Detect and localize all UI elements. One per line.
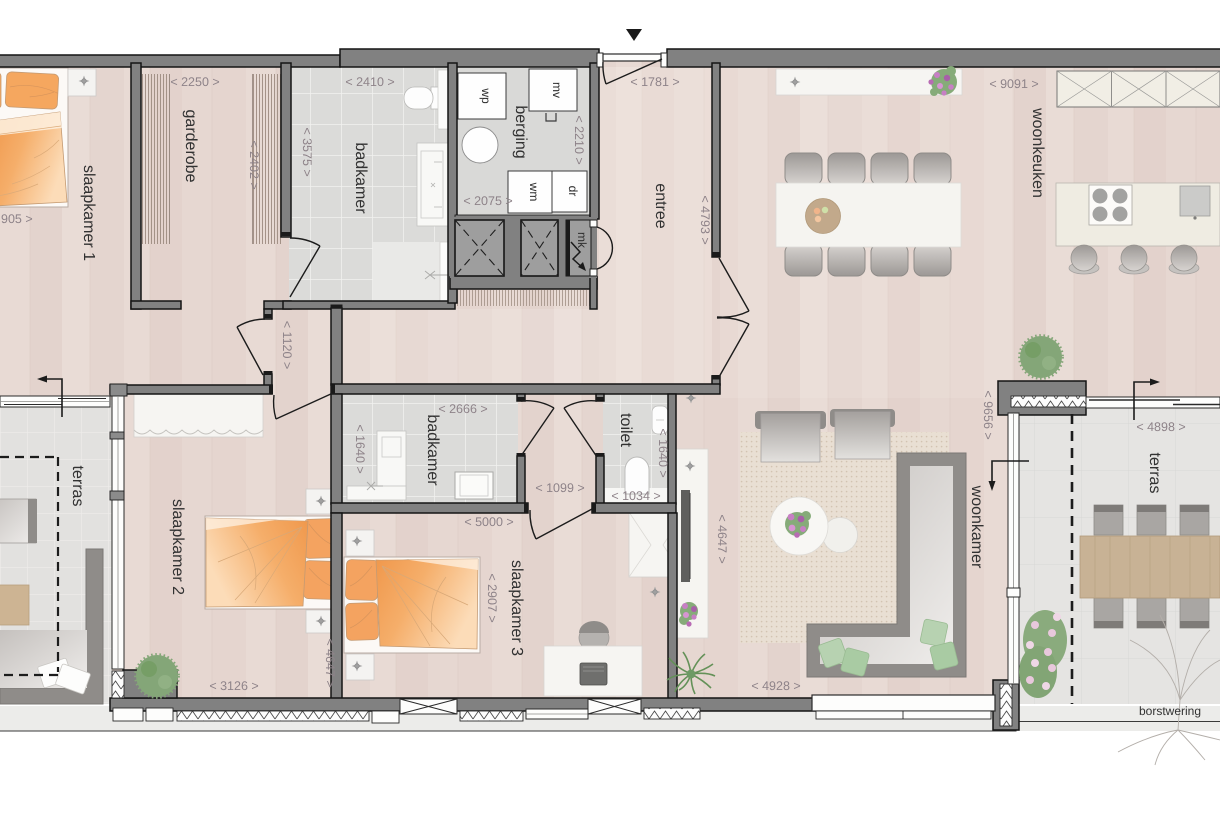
svg-text:wp: wp [479, 87, 493, 104]
svg-text:< 2210 >: < 2210 > [572, 115, 586, 164]
svg-text:< 1640 >: < 1640 > [353, 424, 367, 473]
svg-text:< 4647 >: < 4647 > [715, 514, 729, 563]
svg-text:< 4898 >: < 4898 > [1136, 420, 1185, 434]
svg-text:< 2410 >: < 2410 > [345, 75, 394, 89]
svg-text:< 1781 >: < 1781 > [630, 75, 679, 89]
svg-text:slaapkamer 2: slaapkamer 2 [169, 499, 186, 595]
svg-text:< 4647 >: < 4647 > [323, 638, 337, 687]
svg-text:< 4793 >: < 4793 > [698, 195, 712, 244]
svg-text:< 9091 >: < 9091 > [989, 77, 1038, 91]
svg-text:dr: dr [566, 186, 580, 197]
svg-text:mk: mk [575, 232, 589, 249]
svg-text:badkamer: badkamer [352, 142, 369, 214]
svg-text:< 9656 >: < 9656 > [981, 390, 995, 439]
svg-text:< 2666 >: < 2666 > [438, 402, 487, 416]
svg-text:< 5000 >: < 5000 > [464, 515, 513, 529]
svg-text:terras: terras [69, 466, 86, 507]
svg-text:woonkamer: woonkamer [968, 485, 985, 569]
svg-text:wm: wm [527, 182, 541, 202]
svg-text:905 >: 905 > [1, 212, 33, 226]
svg-text:< 2075 >: < 2075 > [463, 194, 512, 208]
svg-text:< 2402 >: < 2402 > [247, 140, 261, 189]
svg-text:berging: berging [512, 105, 529, 158]
svg-text:< 2250 >: < 2250 > [170, 75, 219, 89]
svg-text:slaapkamer 1: slaapkamer 1 [80, 165, 97, 261]
svg-text:< 3126 >: < 3126 > [209, 679, 258, 693]
svg-text:< 1034 >: < 1034 > [611, 489, 660, 503]
svg-text:< 1120 >: < 1120 > [280, 321, 294, 369]
svg-text:< 1099 >: < 1099 > [535, 481, 584, 495]
svg-text:< 3575 >: < 3575 > [300, 127, 314, 176]
svg-text:borstwering: borstwering [1139, 704, 1201, 718]
svg-text:woonkeuken: woonkeuken [1029, 107, 1046, 198]
svg-text:garderobe: garderobe [182, 110, 199, 183]
svg-text:entree: entree [652, 183, 669, 228]
svg-text:slaapkamer 3: slaapkamer 3 [508, 560, 525, 656]
svg-text:badkamer: badkamer [424, 414, 441, 486]
svg-text:< 1640 >: < 1640 > [656, 428, 670, 477]
svg-text:< 4928 >: < 4928 > [751, 679, 800, 693]
svg-text:toilet: toilet [617, 413, 634, 447]
svg-text:< 2907 >: < 2907 > [485, 573, 499, 622]
svg-text:mv: mv [550, 82, 564, 98]
svg-text:terras: terras [1146, 453, 1163, 494]
